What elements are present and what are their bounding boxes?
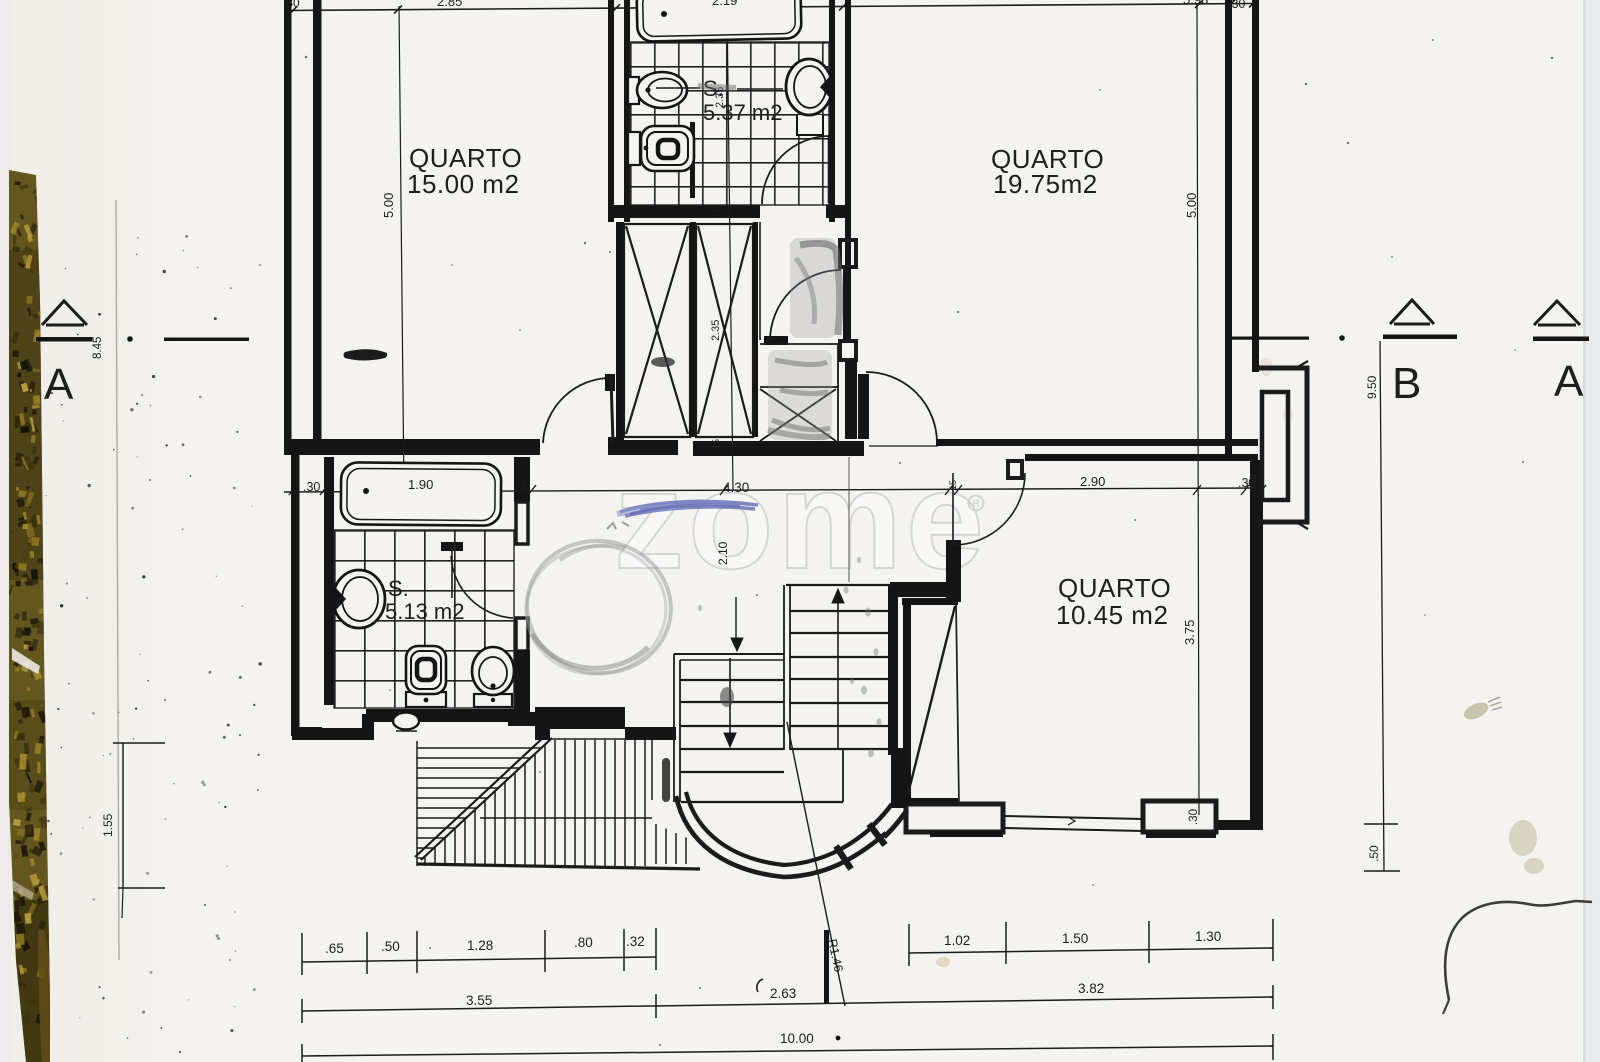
svg-text:2.63: 2.63	[770, 986, 796, 1001]
svg-text:2.35: 2.35	[710, 320, 722, 341]
svg-text:15: 15	[711, 439, 721, 449]
svg-text:2.19: 2.19	[712, 0, 737, 8]
svg-text:.30: .30	[1246, 473, 1263, 487]
svg-text:B: B	[1392, 359, 1421, 408]
svg-text:3.82: 3.82	[1078, 981, 1104, 996]
svg-text:.80: .80	[574, 935, 593, 950]
svg-text:1.02: 1.02	[944, 933, 970, 948]
svg-text:1.55: 1.55	[101, 813, 115, 837]
svg-text:2.90: 2.90	[1080, 474, 1105, 489]
svg-text:.30: .30	[1228, 0, 1245, 11]
svg-text:5.93: 5.93	[1183, 0, 1208, 7]
svg-text:10.45 m2: 10.45 m2	[1056, 600, 1168, 630]
svg-text:4.30: 4.30	[723, 480, 749, 495]
svg-text:5.13 m2: 5.13 m2	[385, 599, 465, 624]
svg-text:3.55: 3.55	[466, 993, 492, 1008]
svg-text:2.10: 2.10	[716, 541, 730, 565]
svg-text:.30: .30	[283, 0, 300, 10]
svg-text:.30: .30	[1188, 809, 1200, 825]
svg-text:8.45: 8.45	[92, 337, 104, 359]
svg-text:2.85: 2.85	[437, 0, 462, 9]
svg-text:1.28: 1.28	[467, 938, 493, 953]
svg-text:10.00: 10.00	[780, 1031, 814, 1046]
svg-text:.32: .32	[626, 934, 645, 949]
svg-text:.30: .30	[303, 480, 320, 494]
svg-text:9.50: 9.50	[1365, 375, 1379, 399]
svg-text:S.: S.	[388, 576, 409, 601]
svg-text:.50: .50	[381, 939, 400, 954]
svg-text:5.00: 5.00	[1184, 193, 1199, 218]
svg-text:R: R	[973, 498, 981, 510]
svg-text:1.90: 1.90	[408, 477, 433, 492]
svg-text:A: A	[44, 360, 74, 409]
svg-text:5.00: 5.00	[381, 193, 396, 218]
svg-text:.50: .50	[1367, 845, 1381, 862]
svg-text:15: 15	[711, 208, 721, 218]
svg-text:1.30: 1.30	[1195, 929, 1221, 944]
svg-text:15: 15	[522, 481, 532, 491]
svg-text:19.75m2: 19.75m2	[993, 169, 1098, 199]
svg-text:QUARTO: QUARTO	[1058, 573, 1171, 603]
svg-text:zome: zome	[614, 441, 988, 598]
svg-text:A: A	[1554, 357, 1584, 406]
svg-text:15: 15	[948, 480, 958, 490]
svg-text:1.50: 1.50	[1062, 931, 1088, 946]
svg-text:.65: .65	[325, 941, 344, 956]
svg-text:15.00 m2: 15.00 m2	[407, 169, 519, 199]
svg-text:3.75: 3.75	[1182, 620, 1197, 645]
